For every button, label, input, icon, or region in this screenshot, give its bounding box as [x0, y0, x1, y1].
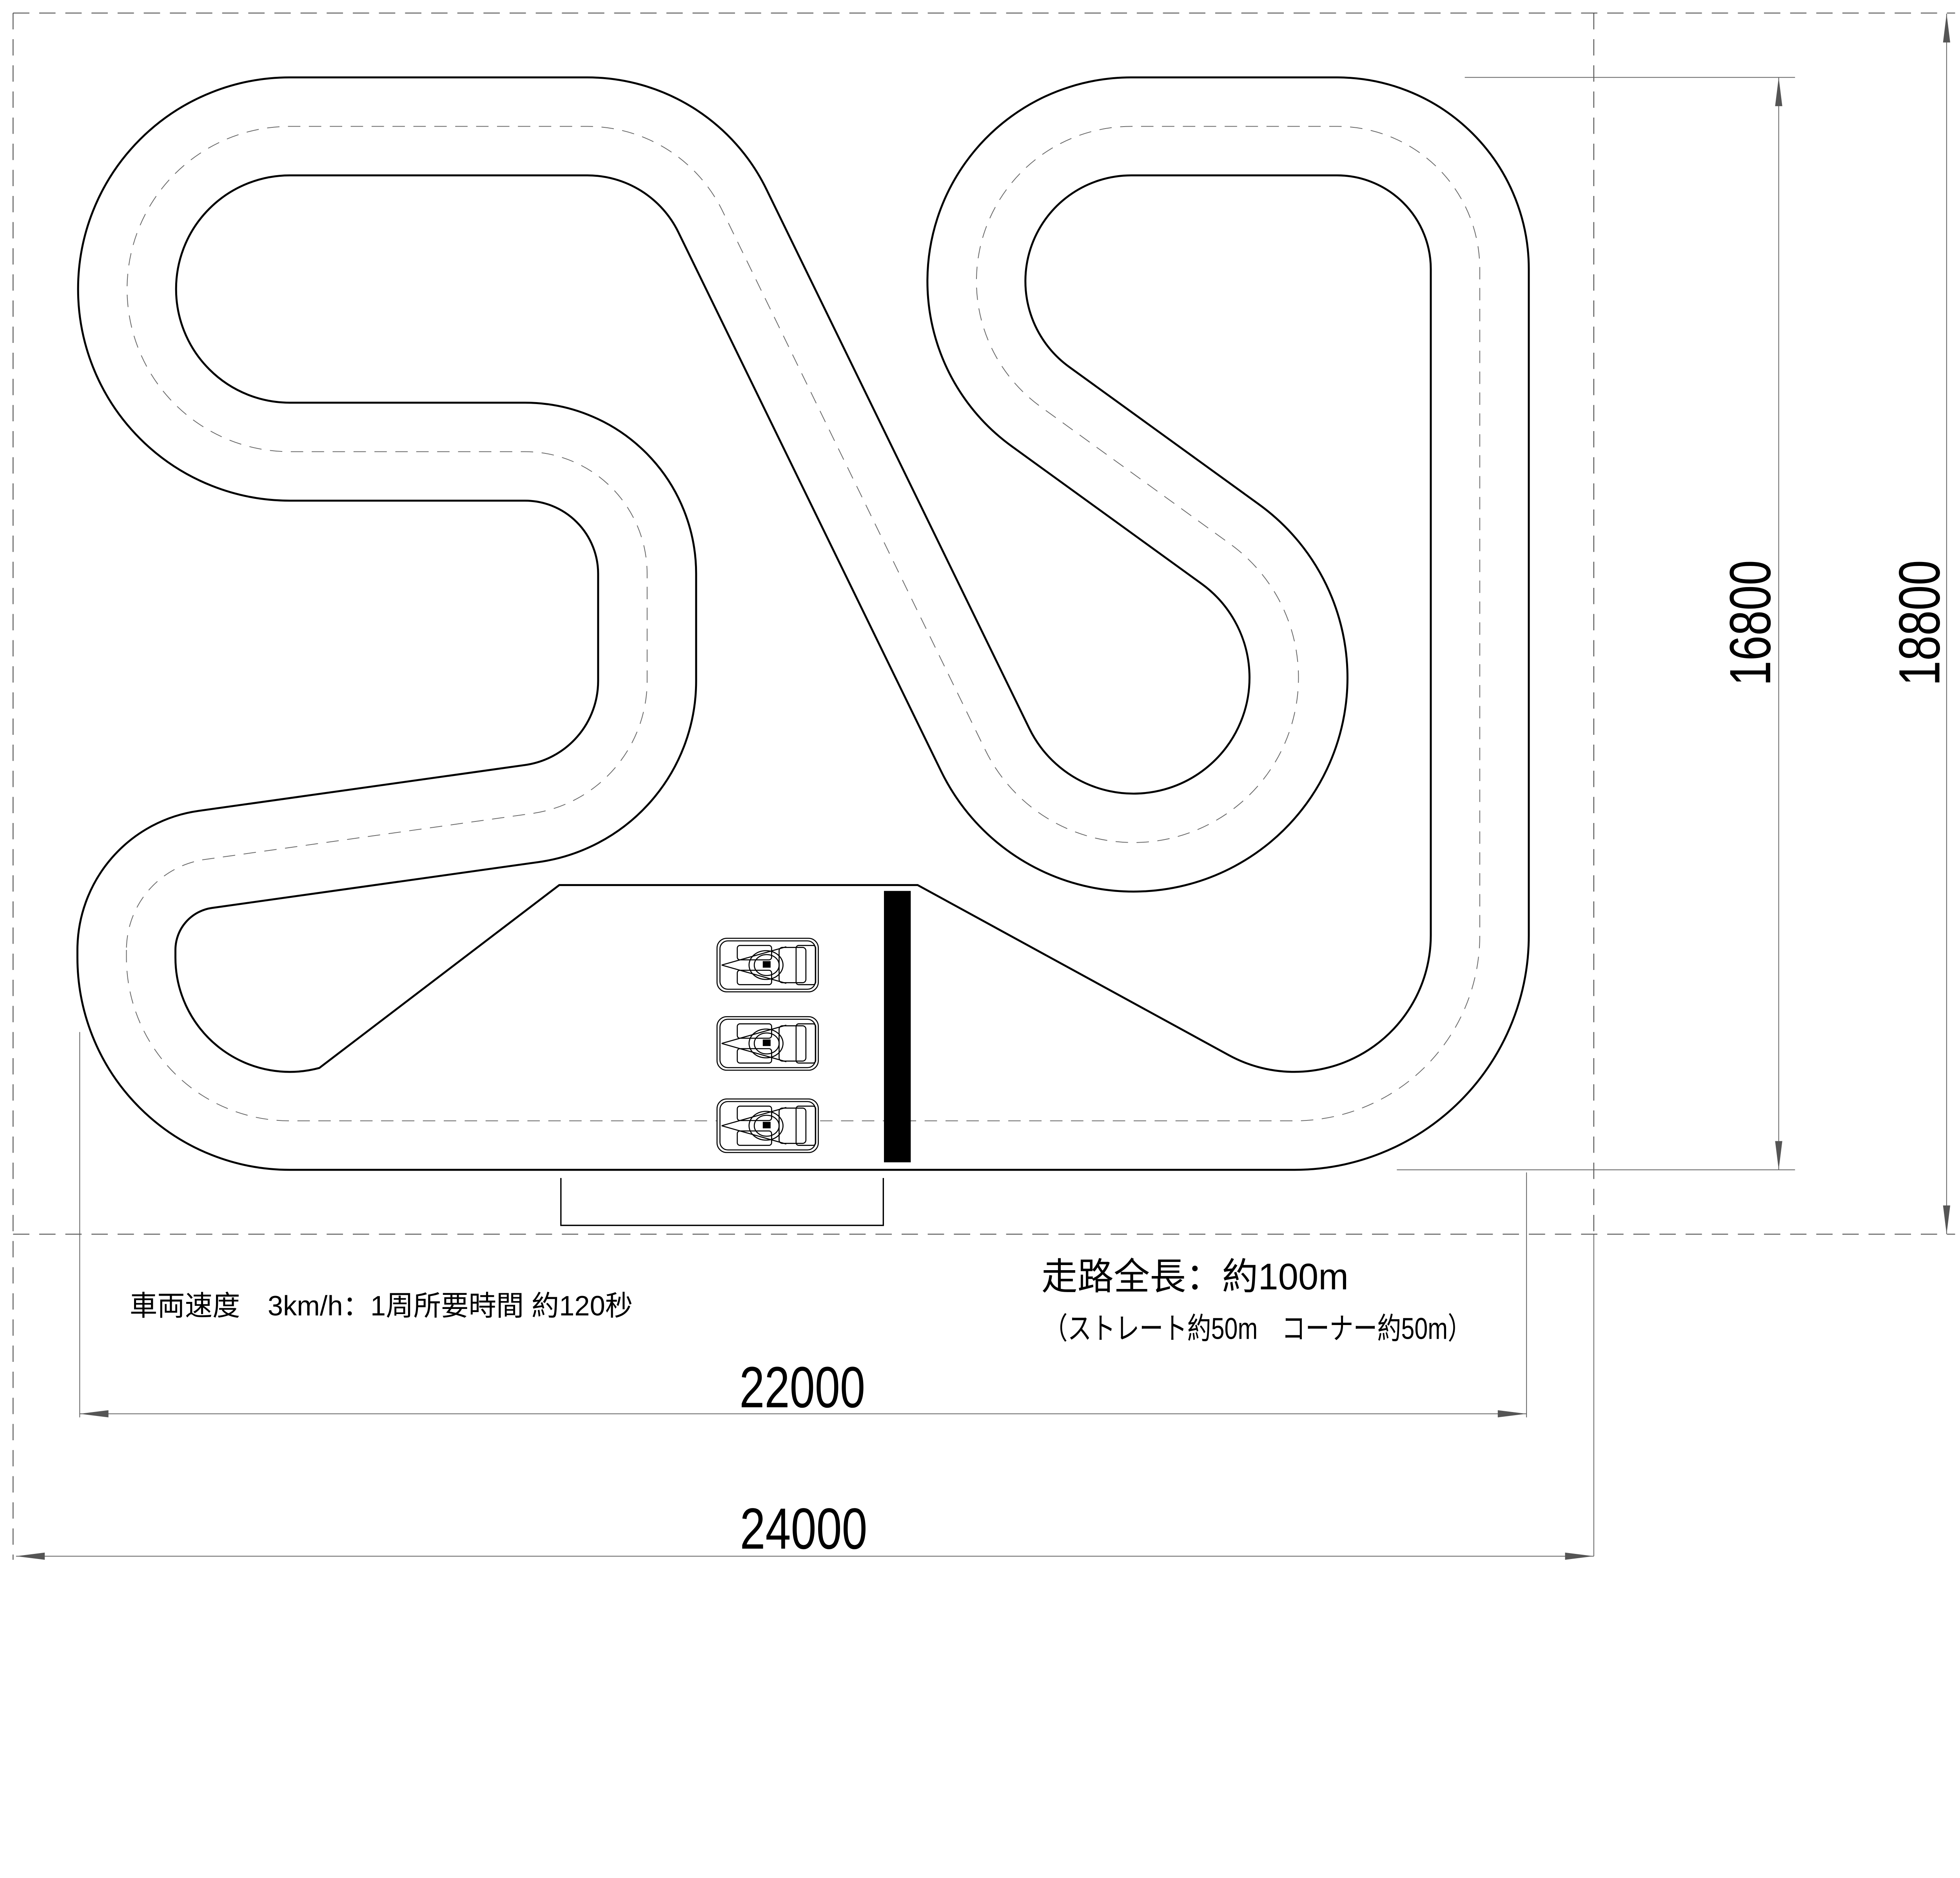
svg-text:車両速度 3km/h：1周所要時間 約120秒: 車両速度 3km/h：1周所要時間 約120秒: [130, 1291, 633, 1322]
svg-text:24000: 24000: [740, 1497, 867, 1561]
svg-text:18800: 18800: [1887, 560, 1952, 686]
svg-text:22000: 22000: [739, 1355, 865, 1420]
svg-text:（ストレート約50m コーナー約50m）: （ストレート約50m コーナー約50m）: [1044, 1312, 1472, 1346]
svg-text:16800: 16800: [1718, 560, 1783, 686]
svg-text:走路全長：約100m: 走路全長：約100m: [1042, 1256, 1348, 1298]
